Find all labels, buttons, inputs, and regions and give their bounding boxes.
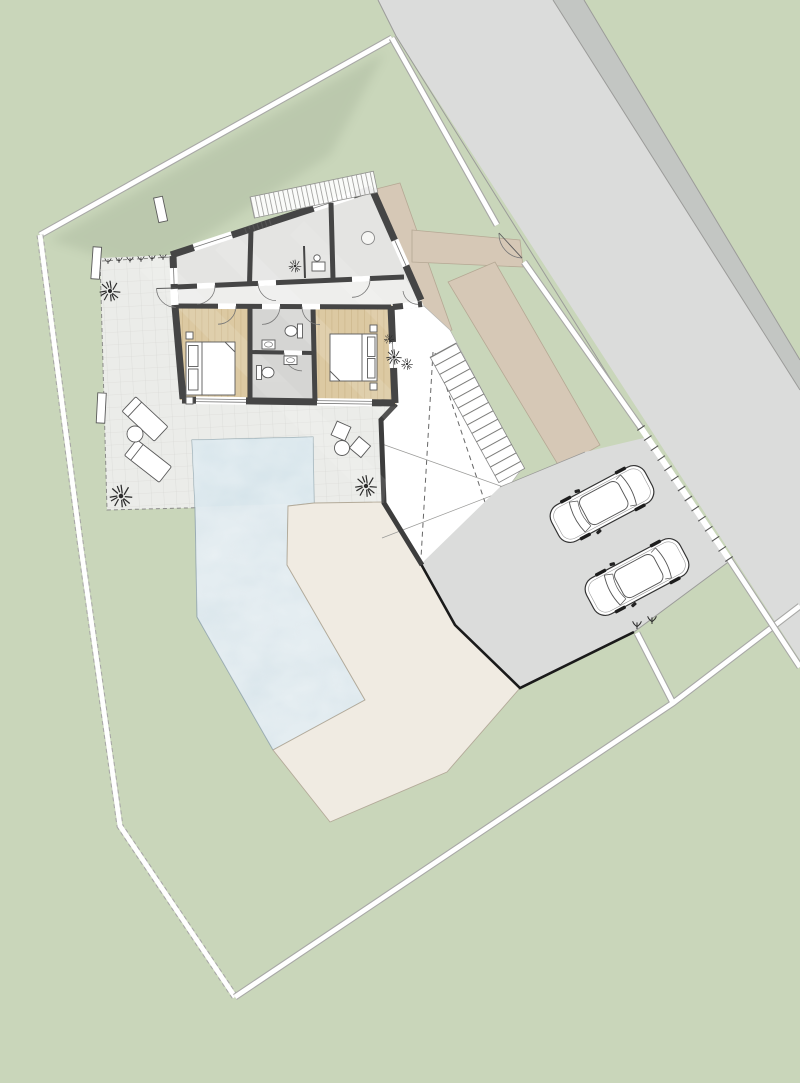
site-plan — [0, 0, 800, 1083]
washbasin-upper — [262, 340, 275, 349]
nightstand — [186, 332, 193, 339]
washbasin-lower — [284, 356, 297, 365]
bed-west — [186, 342, 235, 395]
nightstand — [370, 383, 377, 390]
toilet-upper — [285, 324, 303, 338]
site-plan-canvas — [0, 0, 800, 1083]
round-table — [335, 441, 350, 456]
sliding-door-south-west — [196, 399, 246, 402]
bed-east — [330, 334, 377, 381]
nightstand — [186, 397, 193, 404]
toilet-lower — [257, 366, 275, 380]
round-table — [127, 426, 143, 442]
nightstand — [370, 325, 377, 332]
hall-round-lamp — [362, 232, 375, 245]
sliding-door-south-east — [317, 401, 372, 405]
